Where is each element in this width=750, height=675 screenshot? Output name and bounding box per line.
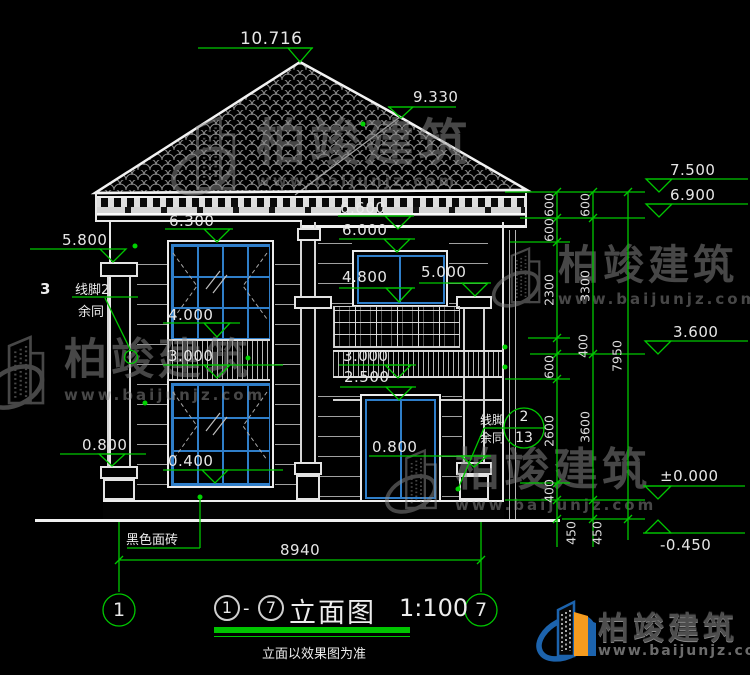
elevation-value: ±0.000 (660, 467, 719, 485)
cad-elevation-drawing: 柏竣建筑 www.baijunjz.com 柏竣建筑 www.baijunjz.… (0, 0, 750, 675)
dim-value: 2300 (542, 274, 557, 306)
callout-same-right: 余同 (480, 429, 504, 446)
elevation-value: 3.000 (343, 347, 388, 365)
callout-molding-right: 线脚 (480, 411, 504, 428)
dim-value: 600 (542, 355, 557, 379)
elevation-value: 9.330 (413, 88, 458, 106)
elevation-value: 4.800 (342, 268, 387, 286)
detail-number: 2 (517, 409, 531, 425)
elevation-value: 2.500 (344, 368, 389, 386)
dim-value: 3300 (578, 270, 593, 302)
brand-logo-icon (536, 596, 606, 668)
detail-sheet: 13 (514, 430, 534, 446)
callout-index: 3 (40, 280, 50, 298)
elevation-value: 4.000 (168, 306, 213, 324)
elevation-value: 6.300 (169, 212, 214, 230)
dim-width-value: 8940 (280, 541, 320, 559)
elevation-value: 7.500 (670, 161, 715, 179)
title-underline-thin (214, 636, 410, 637)
title-scale: 1:100 (399, 594, 468, 622)
dim-value: 3600 (578, 411, 593, 443)
title-note: 立面以效果图为准 (262, 643, 366, 662)
callout-molding-left: 线脚2 (75, 279, 109, 298)
elevation-value: 6.000 (342, 221, 387, 239)
dim-value: 600 (542, 218, 557, 242)
dim-value: 2600 (542, 415, 557, 447)
dimension-linework (0, 0, 750, 675)
elevation-value: 5.000 (421, 263, 466, 281)
dim-value: 600 (578, 193, 593, 217)
dim-value: 450 (564, 521, 579, 545)
elevation-value: -0.450 (660, 536, 711, 554)
title-underline-thick (214, 627, 410, 633)
elevation-value: 10.716 (240, 29, 302, 49)
elevation-value: 0.400 (168, 452, 213, 470)
grid-bubble-left: 1 (102, 593, 136, 627)
elevation-value: 0.800 (372, 438, 417, 456)
title-circle-right: 7 (258, 595, 284, 621)
elevation-value: 3.000 (168, 347, 213, 365)
title-dash: - (243, 598, 250, 619)
elevation-value: 0.800 (82, 436, 127, 454)
dim-value: 7950 (610, 340, 625, 372)
title-name: 立面图 (289, 591, 376, 630)
elevation-value: 6.900 (670, 186, 715, 204)
brand-logo-name: 柏竣建筑 (598, 603, 738, 648)
dim-value: 400 (542, 479, 557, 503)
elevation-value: 3.600 (673, 323, 718, 341)
material-label: 黑色面砖 (126, 529, 178, 548)
title-circle-left: 1 (214, 595, 240, 621)
dim-value: 400 (576, 334, 591, 358)
dim-value: 600 (542, 193, 557, 217)
grid-bubble-right: 7 (464, 593, 498, 627)
callout-same-left: 余同 (78, 301, 104, 320)
dim-value: 450 (590, 521, 605, 545)
elevation-value: 5.800 (62, 231, 107, 249)
elevation-value: 6.600 (340, 199, 385, 217)
brand-logo-url: www.baijunjz.com (598, 643, 750, 659)
